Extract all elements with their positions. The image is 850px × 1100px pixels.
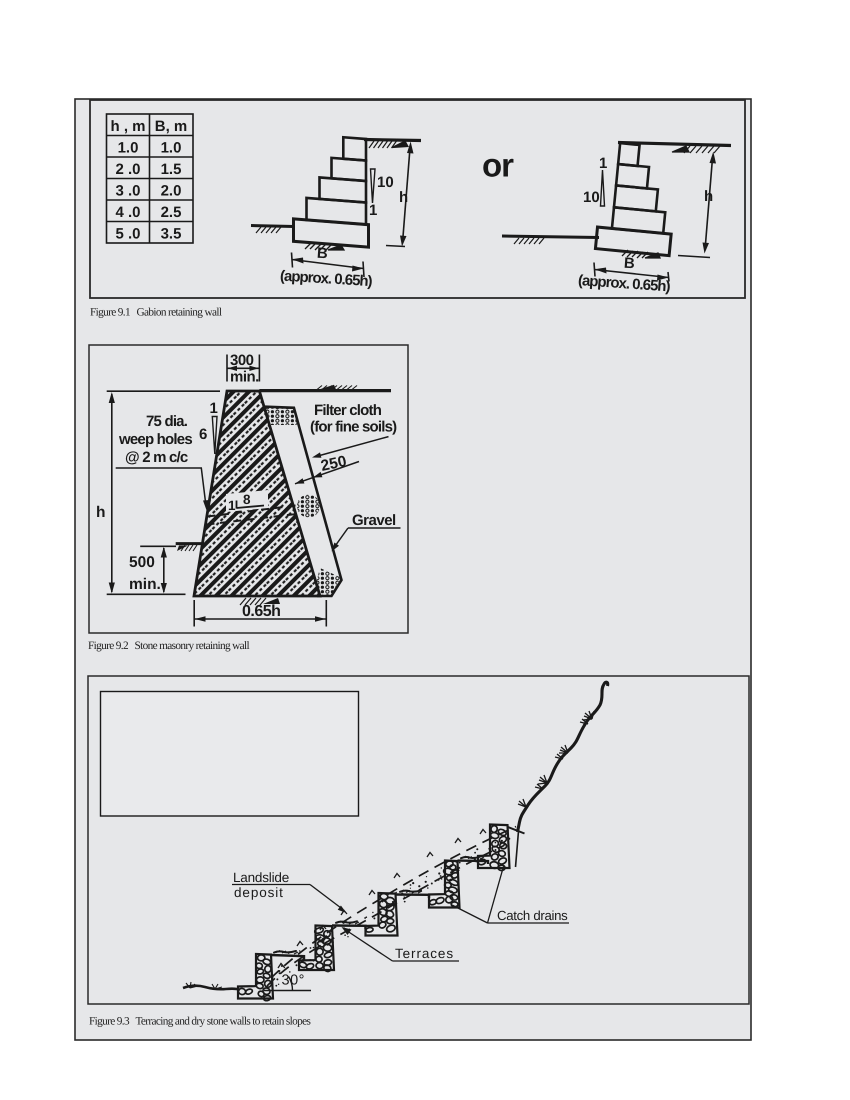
svg-text:Landslide: Landslide bbox=[233, 870, 289, 885]
svg-text:10: 10 bbox=[377, 174, 394, 191]
svg-text:Filter cloth: Filter cloth bbox=[314, 402, 382, 419]
svg-text:1.0: 1.0 bbox=[118, 140, 139, 157]
svg-text:(for fine soils): (for fine soils) bbox=[310, 419, 397, 436]
svg-text:2.5: 2.5 bbox=[161, 204, 182, 221]
svg-text:1: 1 bbox=[210, 400, 218, 417]
svg-text:Figure 9.1 Gabion retaining: Figure 9.1 Gabion retaining wall bbox=[90, 307, 222, 319]
svg-text:Terraces: Terraces bbox=[395, 946, 454, 961]
svg-text:h: h bbox=[704, 188, 713, 205]
svg-text:or: or bbox=[482, 147, 514, 184]
svg-text:1: 1 bbox=[599, 155, 607, 172]
svg-text:deposit: deposit bbox=[234, 885, 284, 900]
svg-text:1.5: 1.5 bbox=[161, 161, 182, 178]
svg-text:Gravel: Gravel bbox=[352, 512, 396, 529]
svg-text:@ 2 m c/c: @ 2 m c/c bbox=[125, 449, 188, 466]
svg-text:300: 300 bbox=[230, 352, 254, 369]
svg-text:2 .0: 2 .0 bbox=[115, 161, 140, 178]
svg-text:weep holes: weep holes bbox=[118, 431, 192, 448]
svg-text:6: 6 bbox=[199, 426, 207, 443]
svg-text:3 .0: 3 .0 bbox=[115, 183, 140, 200]
svg-text:B: B bbox=[316, 245, 328, 263]
svg-text:Catch drains: Catch drains bbox=[497, 908, 568, 923]
svg-text:h: h bbox=[399, 189, 408, 206]
svg-text:1.0: 1.0 bbox=[161, 140, 182, 157]
svg-text:75 dia.: 75 dia. bbox=[146, 413, 188, 430]
svg-text:500: 500 bbox=[129, 554, 155, 571]
svg-text:B, m: B, m bbox=[155, 118, 188, 135]
svg-text:Figure 9.2 Stone masonry ret: Figure 9.2 Stone masonry retaining wall bbox=[88, 640, 249, 652]
svg-text:0.65h: 0.65h bbox=[242, 603, 280, 620]
svg-text:h: h bbox=[96, 504, 105, 521]
svg-text:5 .0: 5 .0 bbox=[115, 226, 140, 243]
svg-text:h , m: h , m bbox=[110, 118, 145, 135]
svg-text:30°: 30° bbox=[282, 973, 305, 989]
svg-text:B: B bbox=[623, 255, 635, 273]
svg-text:min.: min. bbox=[129, 576, 161, 593]
svg-text:4 .0: 4 .0 bbox=[115, 204, 140, 221]
svg-text:10: 10 bbox=[583, 189, 600, 206]
svg-text:1: 1 bbox=[228, 498, 236, 513]
svg-text:3.5: 3.5 bbox=[161, 226, 182, 243]
svg-text:8: 8 bbox=[243, 492, 251, 507]
svg-text:Figure 9.3 Terracing and dry: Figure 9.3 Terracing and dry stone walls… bbox=[89, 1016, 311, 1028]
svg-text:1: 1 bbox=[369, 202, 377, 219]
svg-text:2.0: 2.0 bbox=[161, 183, 182, 200]
svg-text:min.: min. bbox=[230, 369, 259, 386]
